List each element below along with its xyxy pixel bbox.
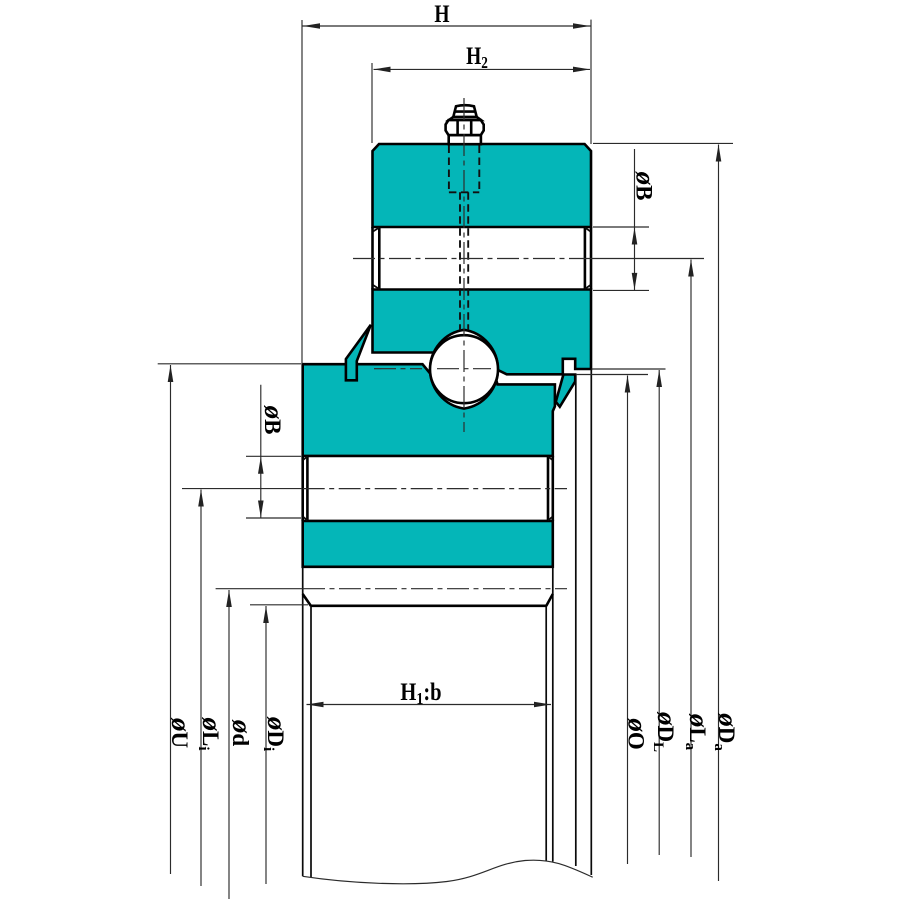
svg-text:øLi: øLi (195, 716, 227, 750)
svg-text:øO: øO (623, 717, 653, 749)
svg-text:øB: øB (259, 405, 289, 435)
svg-text:øB: øB (631, 171, 661, 201)
svg-text:øU: øU (166, 717, 196, 749)
svg-text:H: H (434, 0, 450, 28)
svg-text:øDi: øDi (260, 716, 292, 751)
svg-text:ød: ød (227, 719, 257, 747)
